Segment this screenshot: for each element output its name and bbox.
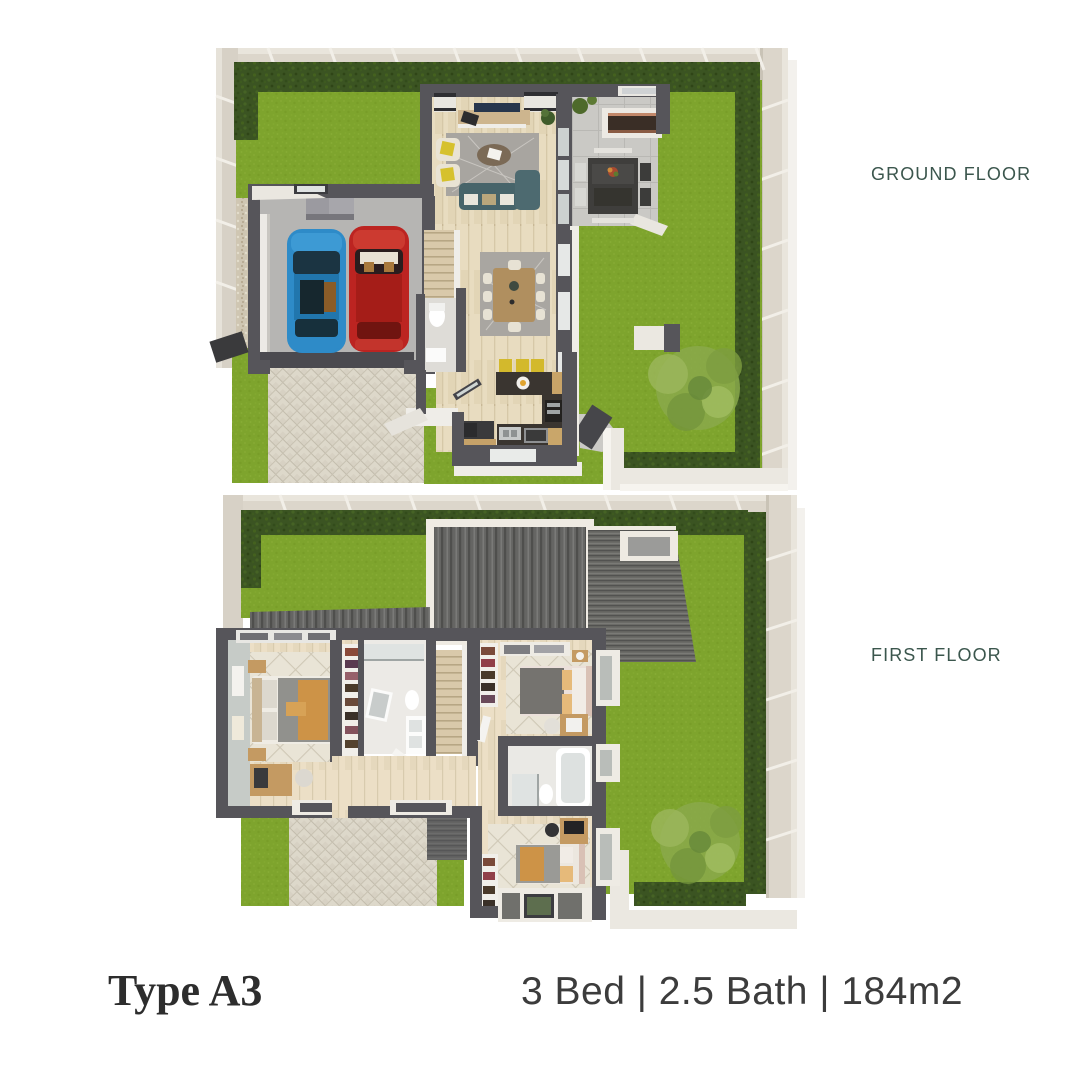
svg-text:FIRST FLOOR: FIRST FLOOR xyxy=(871,645,1002,665)
svg-text:Type A3: Type A3 xyxy=(108,966,262,1015)
svg-text:GROUND FLOOR: GROUND FLOOR xyxy=(871,164,1031,184)
svg-text:3 Bed | 2.5 Bath | 184m2: 3 Bed | 2.5 Bath | 184m2 xyxy=(521,970,963,1013)
